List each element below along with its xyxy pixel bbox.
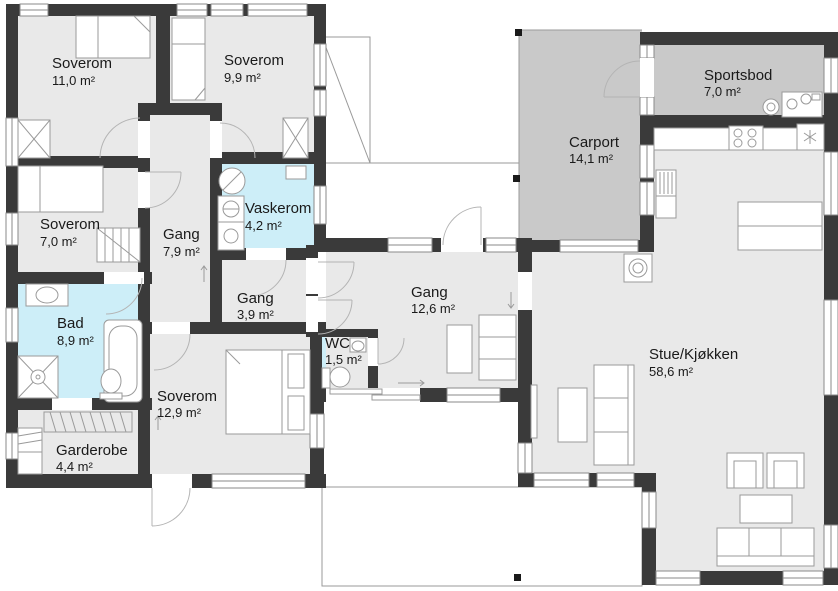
carport-post-top xyxy=(515,29,522,36)
room-label-area: 12,9 m² xyxy=(157,405,202,420)
toilet-icon xyxy=(100,369,122,399)
room-label-area: 9,9 m² xyxy=(224,70,262,85)
room-label-area: 7,0 m² xyxy=(704,84,742,99)
carport-post-mid xyxy=(513,175,520,182)
room-label-area: 4,2 m² xyxy=(245,218,283,233)
sink-icon xyxy=(350,338,366,352)
tv-icon xyxy=(531,385,537,438)
appliance-icon xyxy=(797,124,824,150)
bed-icon xyxy=(18,166,103,212)
entry-canopy-diagonal xyxy=(322,37,370,163)
coffee-table-icon xyxy=(740,495,792,523)
sink-icon xyxy=(26,284,68,306)
tall-cabinet-icon xyxy=(656,170,676,218)
sofa-icon xyxy=(717,528,814,566)
room-label-name: Gang xyxy=(163,226,200,243)
room-label-name: Soverom xyxy=(52,55,112,72)
laundry-sink-icon xyxy=(218,196,244,222)
room-label-name: Garderobe xyxy=(56,442,128,459)
room-label-name: WC xyxy=(325,335,350,352)
wardrobe-icon xyxy=(18,120,50,158)
armchair-icon xyxy=(727,453,763,488)
terrace-post xyxy=(514,574,521,581)
room-label-name: Gang xyxy=(237,290,274,307)
room-label-area: 7,9 m² xyxy=(163,244,201,259)
room-label-name: Soverom xyxy=(40,216,100,233)
kitchen-island xyxy=(738,202,822,250)
detergent-box-icon xyxy=(286,166,306,179)
room-label-name: Soverom xyxy=(224,52,284,69)
water-heater-icon xyxy=(763,99,779,115)
room-label-area: 8,9 m² xyxy=(57,333,95,348)
room-label-area: 4,4 m² xyxy=(56,459,94,474)
shelf-icon xyxy=(18,428,42,474)
terrace-outline xyxy=(322,487,642,586)
floor-plan: Soverom 11,0 m² Soverom 9,9 m² Soverom 7… xyxy=(0,0,838,591)
wardrobe-icon xyxy=(97,228,140,262)
cooktop-icon xyxy=(729,126,763,150)
wardrobe-icon xyxy=(283,118,308,158)
room-label-name: Sportsbod xyxy=(704,67,772,84)
washing-machine-icon xyxy=(219,168,245,194)
room-label-area: 3,9 m² xyxy=(237,307,275,322)
wood-stove-icon xyxy=(624,254,652,282)
room-label-area: 11,0 m² xyxy=(52,73,96,88)
armchair-icon xyxy=(767,453,804,488)
dryer-icon xyxy=(218,222,244,250)
room-label-area: 7,0 m² xyxy=(40,234,78,249)
floor-plan-canvas: Soverom 11,0 m² Soverom 9,9 m² Soverom 7… xyxy=(0,0,838,591)
sliding-door-panel xyxy=(372,395,420,400)
bed-icon xyxy=(172,18,205,100)
dresser-icon xyxy=(447,325,472,373)
room-gang-79-floor xyxy=(150,115,210,322)
toilet-icon xyxy=(322,367,350,388)
room-label-name: Stue/Kjøkken xyxy=(649,346,738,363)
room-label-name: Bad xyxy=(57,315,84,332)
room-label-name: Vaskerom xyxy=(245,200,311,217)
sofa-icon xyxy=(594,365,634,465)
room-label-name: Soverom xyxy=(157,388,217,405)
room-label-area: 58,6 m² xyxy=(649,364,694,379)
room-label-area: 12,6 m² xyxy=(411,301,456,316)
sliding-door-panel xyxy=(330,389,382,394)
double-bed-icon xyxy=(226,350,310,434)
room-label-name: Gang xyxy=(411,284,448,301)
shower-icon xyxy=(18,356,58,398)
coffee-table-icon xyxy=(558,388,587,442)
room-label-area: 14,1 m² xyxy=(569,151,614,166)
room-label-name: Carport xyxy=(569,134,620,151)
utility-sink-icon xyxy=(782,92,822,117)
bed-icon xyxy=(76,16,150,58)
bench-icon xyxy=(479,315,516,380)
room-label-area: 1,5 m² xyxy=(325,352,363,367)
